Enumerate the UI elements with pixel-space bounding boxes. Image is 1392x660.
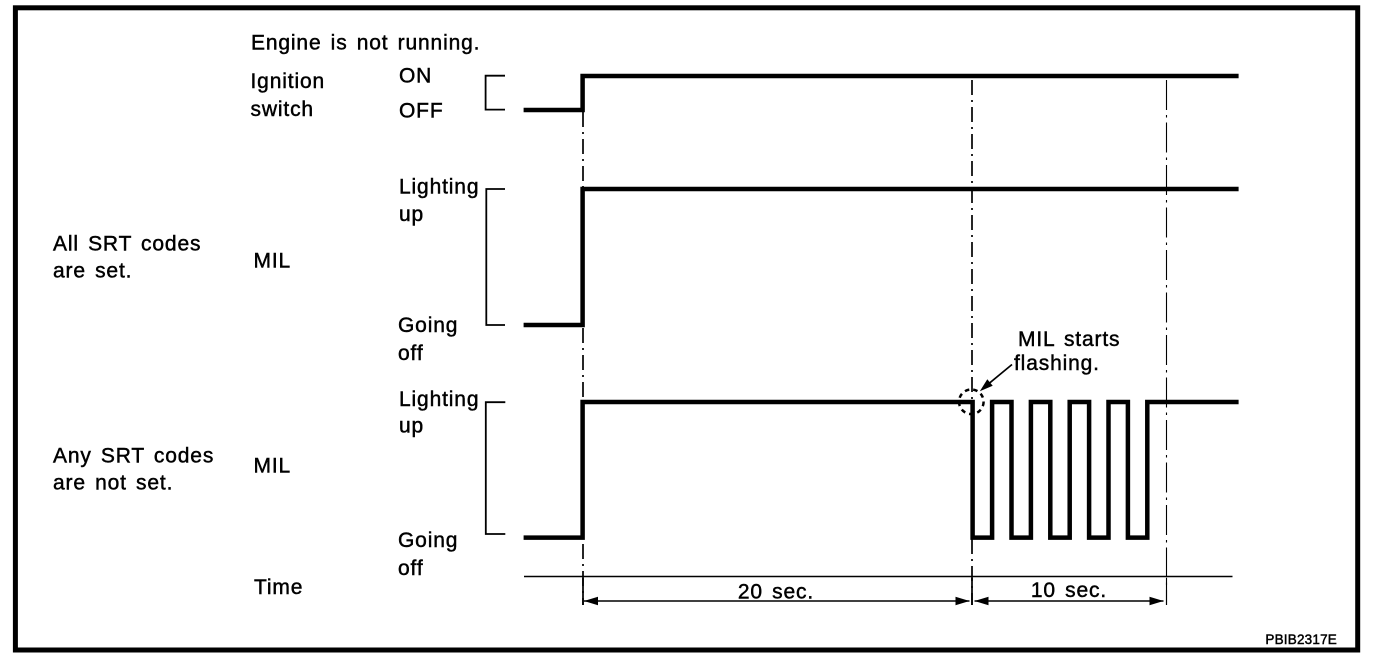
svg-text:Engine is not running.: Engine is not running. — [251, 32, 480, 55]
svg-text:off: off — [398, 342, 424, 365]
svg-text:MIL: MIL — [254, 454, 292, 477]
svg-text:All SRT codes: All SRT codes — [53, 232, 201, 255]
svg-text:are set.: are set. — [53, 260, 132, 283]
svg-text:Going: Going — [398, 529, 458, 552]
svg-text:10 sec.: 10 sec. — [1031, 579, 1107, 602]
svg-text:Ignition: Ignition — [251, 70, 326, 93]
svg-text:Going: Going — [398, 314, 458, 337]
svg-text:Time: Time — [254, 576, 303, 599]
svg-text:Lighting: Lighting — [399, 388, 479, 411]
svg-text:PBIB2317E: PBIB2317E — [1265, 632, 1337, 647]
svg-text:off: off — [398, 557, 424, 580]
svg-text:MIL: MIL — [254, 249, 292, 272]
svg-text:Lighting: Lighting — [399, 176, 479, 199]
svg-text:OFF: OFF — [399, 99, 444, 122]
svg-text:up: up — [399, 415, 424, 438]
svg-text:ON: ON — [399, 65, 432, 88]
svg-text:flashing.: flashing. — [1014, 352, 1100, 375]
svg-text:Any SRT codes: Any SRT codes — [53, 444, 214, 467]
svg-text:up: up — [399, 203, 424, 226]
svg-text:MIL starts: MIL starts — [1018, 328, 1120, 351]
svg-text:switch: switch — [251, 98, 314, 121]
svg-text:are not set.: are not set. — [53, 472, 173, 495]
svg-text:20 sec.: 20 sec. — [738, 581, 814, 604]
